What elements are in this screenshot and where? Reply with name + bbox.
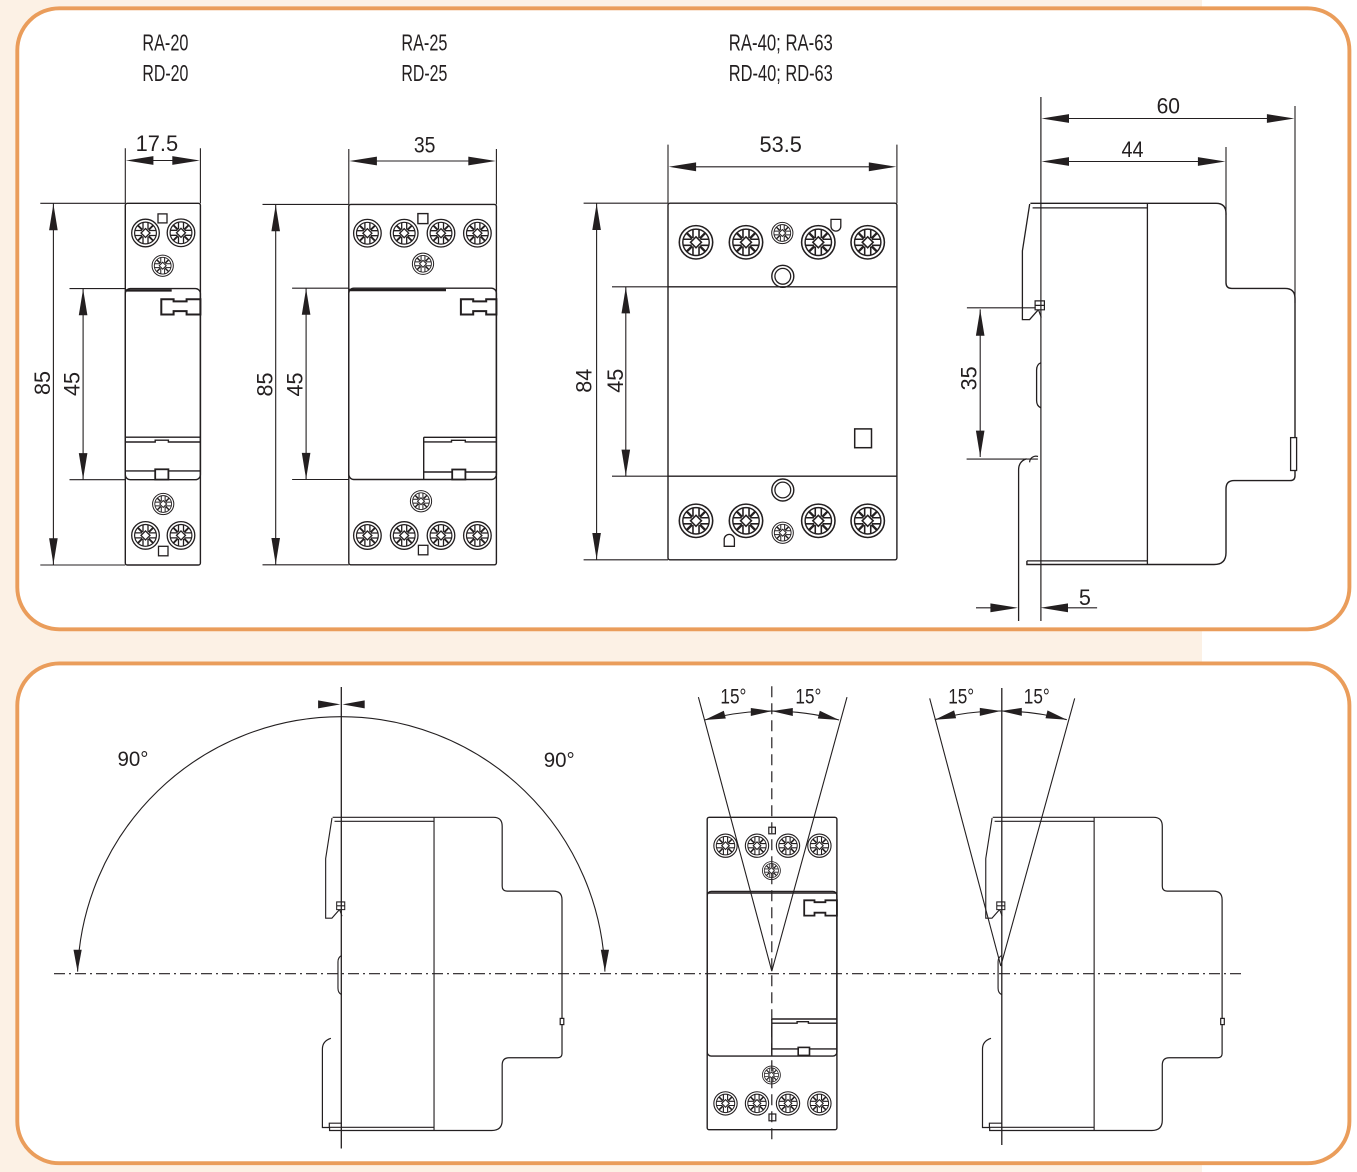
svg-text:15°: 15° bbox=[795, 686, 821, 709]
svg-text:RA-20: RA-20 bbox=[142, 29, 188, 55]
svg-text:5: 5 bbox=[1079, 585, 1091, 610]
svg-text:35: 35 bbox=[957, 366, 982, 390]
svg-text:45: 45 bbox=[60, 372, 85, 396]
svg-text:44: 44 bbox=[1122, 137, 1144, 162]
svg-text:45: 45 bbox=[282, 373, 307, 397]
svg-text:84: 84 bbox=[571, 369, 596, 393]
svg-text:35: 35 bbox=[414, 132, 436, 157]
svg-text:17.5: 17.5 bbox=[136, 131, 179, 156]
svg-text:RD-20: RD-20 bbox=[142, 60, 188, 86]
svg-text:RD-40; RD-63: RD-40; RD-63 bbox=[729, 60, 833, 86]
svg-text:90°: 90° bbox=[544, 749, 575, 772]
svg-text:90°: 90° bbox=[118, 748, 149, 771]
svg-text:60: 60 bbox=[1157, 94, 1180, 119]
svg-text:RA-25: RA-25 bbox=[401, 29, 447, 55]
svg-text:15°: 15° bbox=[720, 686, 746, 709]
svg-text:15°: 15° bbox=[948, 686, 974, 709]
svg-text:85: 85 bbox=[30, 371, 55, 395]
svg-text:85: 85 bbox=[252, 373, 277, 397]
svg-text:15°: 15° bbox=[1024, 686, 1050, 709]
svg-text:RD-25: RD-25 bbox=[401, 60, 447, 86]
svg-text:53.5: 53.5 bbox=[760, 132, 802, 157]
svg-text:45: 45 bbox=[603, 369, 628, 393]
svg-text:RA-40; RA-63: RA-40; RA-63 bbox=[729, 29, 833, 55]
